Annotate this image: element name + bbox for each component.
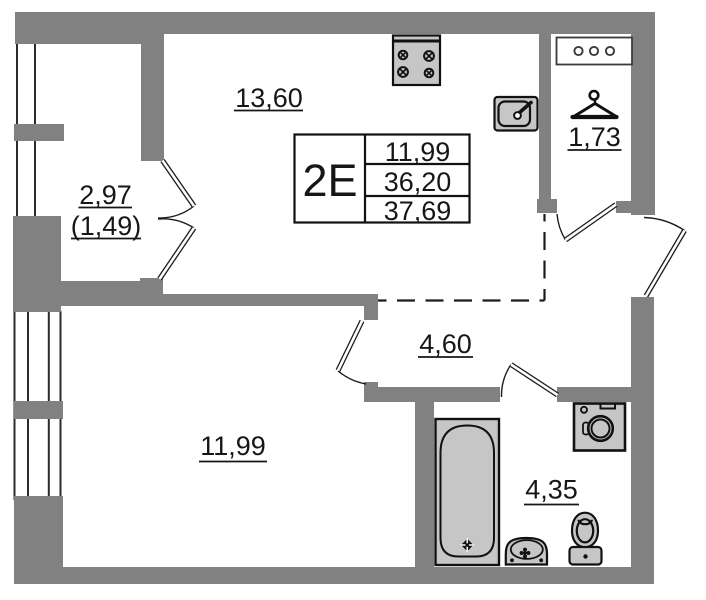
svg-text:11,99: 11,99 (200, 431, 266, 461)
svg-text:4,60: 4,60 (419, 329, 472, 359)
svg-text:37,69: 37,69 (384, 196, 452, 226)
svg-text:1,73: 1,73 (568, 122, 621, 152)
svg-text:(1,49): (1,49) (71, 211, 142, 241)
svg-text:36,20: 36,20 (384, 167, 452, 197)
svg-text:11,99: 11,99 (385, 137, 451, 167)
svg-text:13,60: 13,60 (235, 83, 303, 113)
svg-text:2,97: 2,97 (79, 180, 132, 210)
svg-text:2Е: 2Е (302, 155, 357, 206)
svg-text:4,35: 4,35 (525, 475, 578, 505)
